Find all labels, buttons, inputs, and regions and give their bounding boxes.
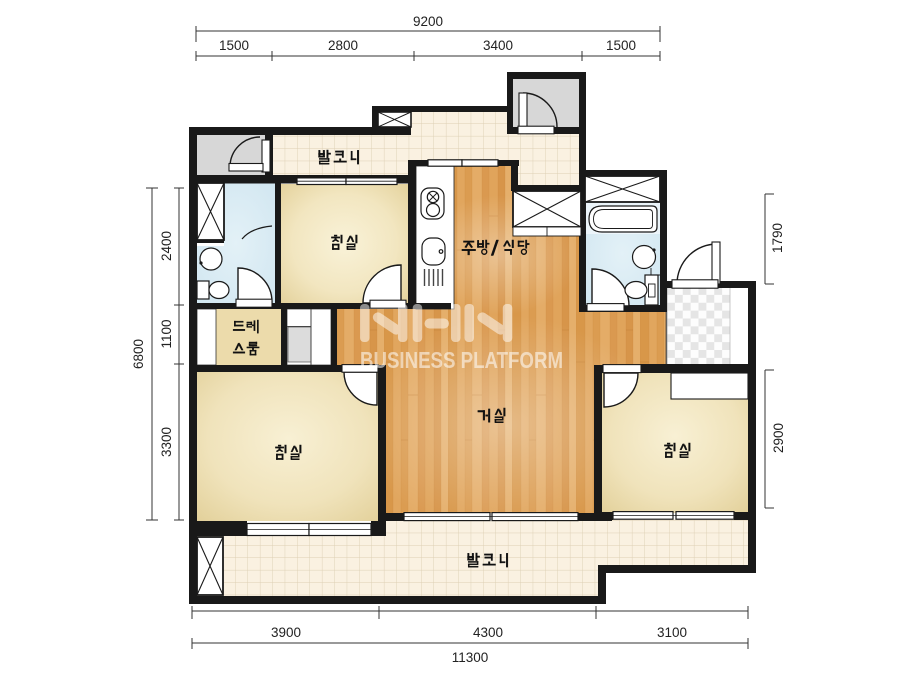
svg-text:4300: 4300 [473, 625, 503, 640]
svg-text:3100: 3100 [657, 625, 687, 640]
svg-text:2400: 2400 [159, 231, 174, 261]
svg-text:1100: 1100 [159, 319, 174, 348]
svg-text:BUSINESS PLATFORM: BUSINESS PLATFORM [360, 347, 563, 373]
svg-text:3400: 3400 [483, 38, 513, 53]
svg-text:11300: 11300 [452, 650, 489, 665]
svg-text:6800: 6800 [131, 339, 146, 369]
svg-text:1500: 1500 [606, 38, 636, 53]
svg-text:2900: 2900 [771, 423, 786, 453]
svg-text:1500: 1500 [219, 38, 249, 53]
svg-text:1790: 1790 [770, 223, 785, 253]
svg-text:9200: 9200 [413, 14, 443, 29]
svg-text:3300: 3300 [159, 427, 174, 457]
svg-text:3900: 3900 [271, 625, 301, 640]
svg-text:2800: 2800 [328, 38, 358, 53]
